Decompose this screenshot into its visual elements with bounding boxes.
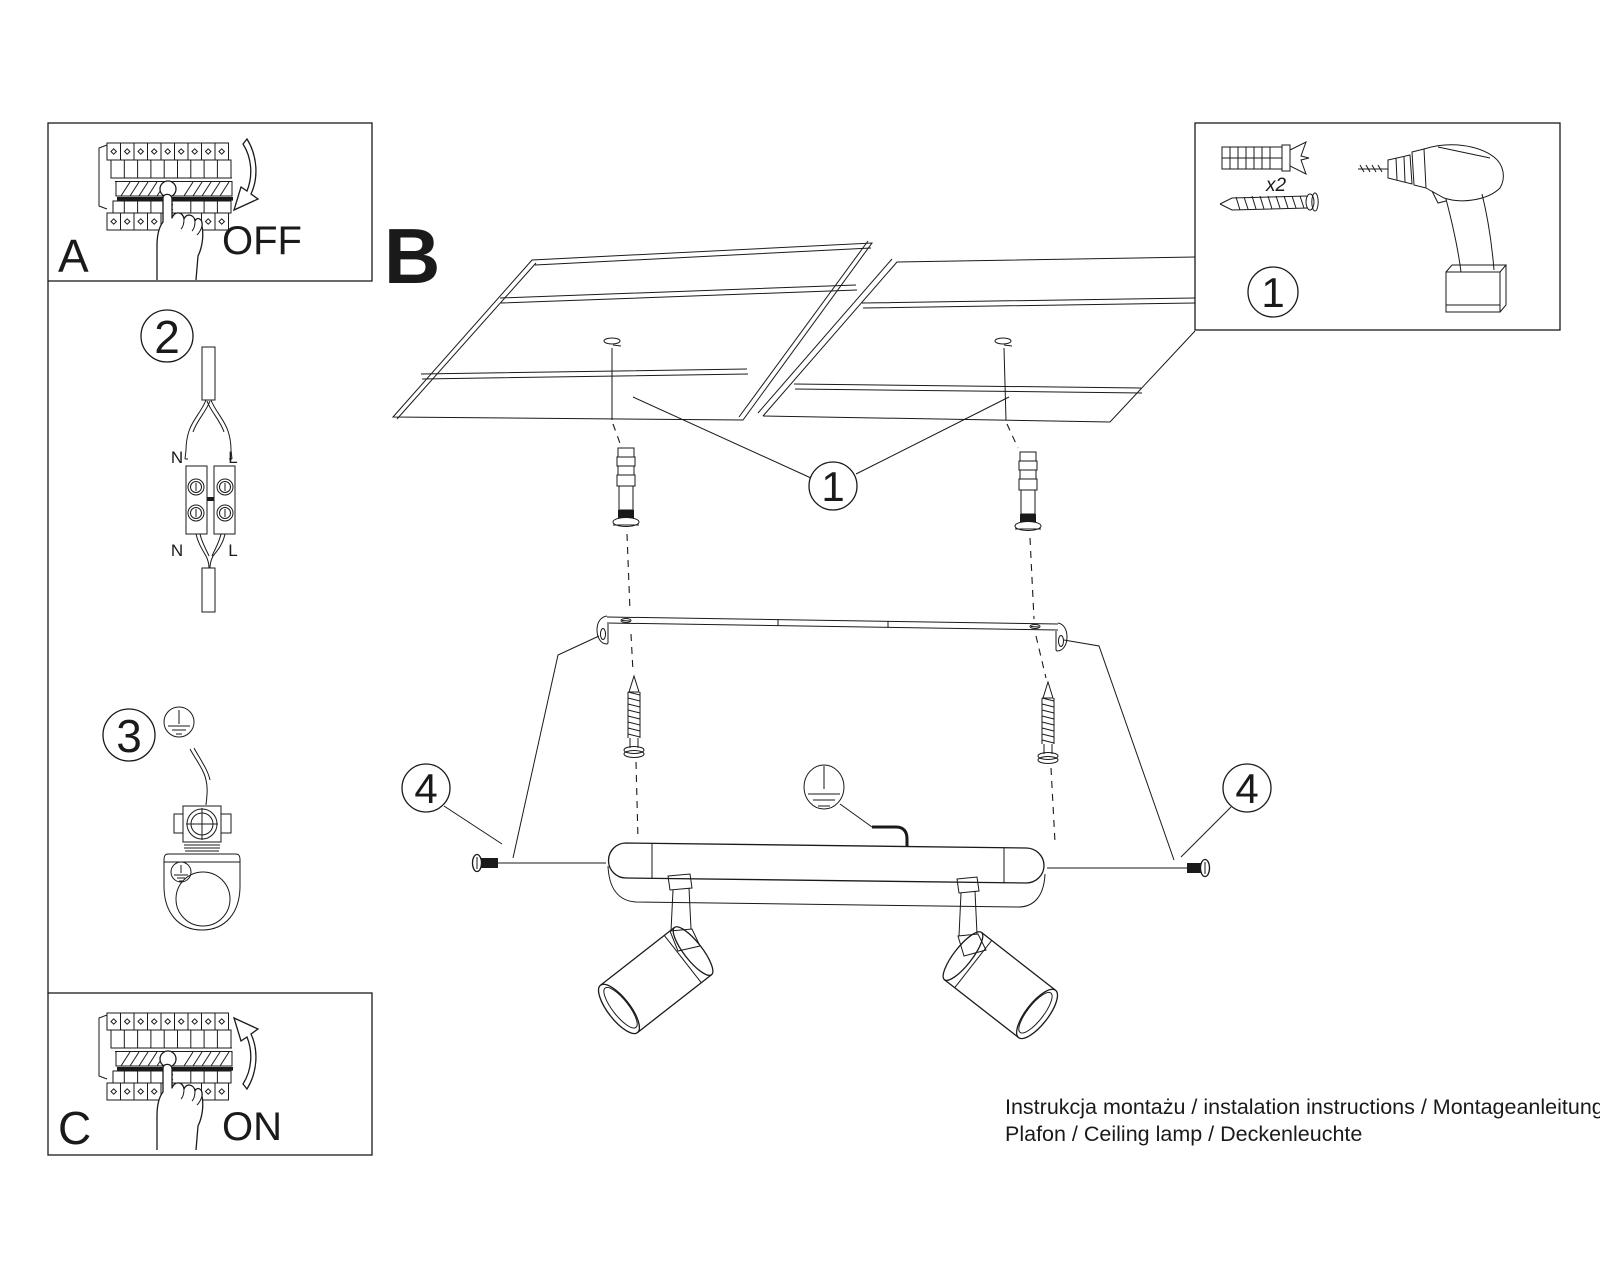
section-2-wiring: 2 N L N L: [141, 310, 238, 612]
arrow-up-icon: [234, 1018, 258, 1089]
wire-label-l-bottom: L: [228, 541, 237, 560]
callout-4-left-group: 4: [402, 764, 606, 872]
footer-line1: Instrukcja montażu / instalation instruc…: [1005, 1095, 1600, 1119]
drill-hole: [604, 338, 620, 344]
dowel-quantity: x2: [1265, 175, 1287, 196]
frame: [48, 123, 1560, 1155]
spotlight-right: [937, 877, 1064, 1044]
box-a-border: [48, 123, 372, 281]
section-3-earth: 3: [103, 707, 240, 930]
footer-line2: Plafon / Ceiling lamp / Deckenleuchte: [1005, 1122, 1362, 1146]
drill-hole: [995, 338, 1011, 344]
wall-plug-icon: [1222, 142, 1309, 174]
arrow-down-icon: [234, 139, 258, 210]
box-c-border: [48, 993, 372, 1155]
step-a-action: OFF: [222, 219, 302, 263]
ceiling-panels: [393, 241, 1195, 422]
wire-label-n-bottom: N: [171, 541, 183, 560]
callout-4: 4: [414, 765, 437, 812]
earth-symbol-icon: [804, 765, 872, 827]
callout-3: 3: [116, 710, 142, 762]
callout-1-group: 1: [633, 397, 1009, 510]
footer: Instrukcja montażu / instalation instruc…: [1005, 1095, 1600, 1146]
step-c-label: C: [58, 1102, 91, 1154]
lamp-body: [592, 827, 1064, 1044]
callout-4: 4: [1235, 765, 1258, 812]
parts-callout: 1: [1261, 269, 1284, 316]
parts-box: x2 1: [1220, 142, 1506, 317]
wire-label-l-top: L: [228, 448, 237, 467]
earth-symbol-icon: [164, 707, 194, 737]
cable-bottom: [202, 568, 215, 612]
callout-4-right-group: 4: [1047, 764, 1271, 877]
step-a: A OFF: [58, 139, 302, 282]
step-a-label: A: [58, 230, 89, 282]
instruction-drawing: A OFF 2 N L N L 3: [0, 0, 1600, 1280]
step-b-label: B: [384, 212, 440, 300]
wire-label-n-top: N: [171, 448, 183, 467]
callout-2: 2: [154, 311, 180, 363]
guide-line-right: [1064, 640, 1174, 860]
callout-1: 1: [821, 463, 844, 510]
ground-lug-icon: [164, 806, 240, 930]
drill-icon: [1358, 145, 1506, 312]
spotlight-left: [592, 874, 719, 1039]
instruction-sheet: A OFF 2 N L N L 3: [0, 0, 1600, 1280]
mounting-bracket: [597, 616, 1067, 651]
step-c: C ON: [58, 1013, 282, 1154]
canopy: [609, 843, 1045, 883]
parts-box-border: [1195, 123, 1560, 330]
step-c-action: ON: [222, 1105, 282, 1149]
terminal-block-icon: [186, 466, 235, 534]
guide-line-left: [513, 636, 599, 858]
lamp-wire: [872, 827, 907, 846]
step-b-assembly: B 1: [384, 212, 1271, 1044]
cable-top: [202, 347, 215, 400]
earth-wire: [190, 748, 210, 805]
